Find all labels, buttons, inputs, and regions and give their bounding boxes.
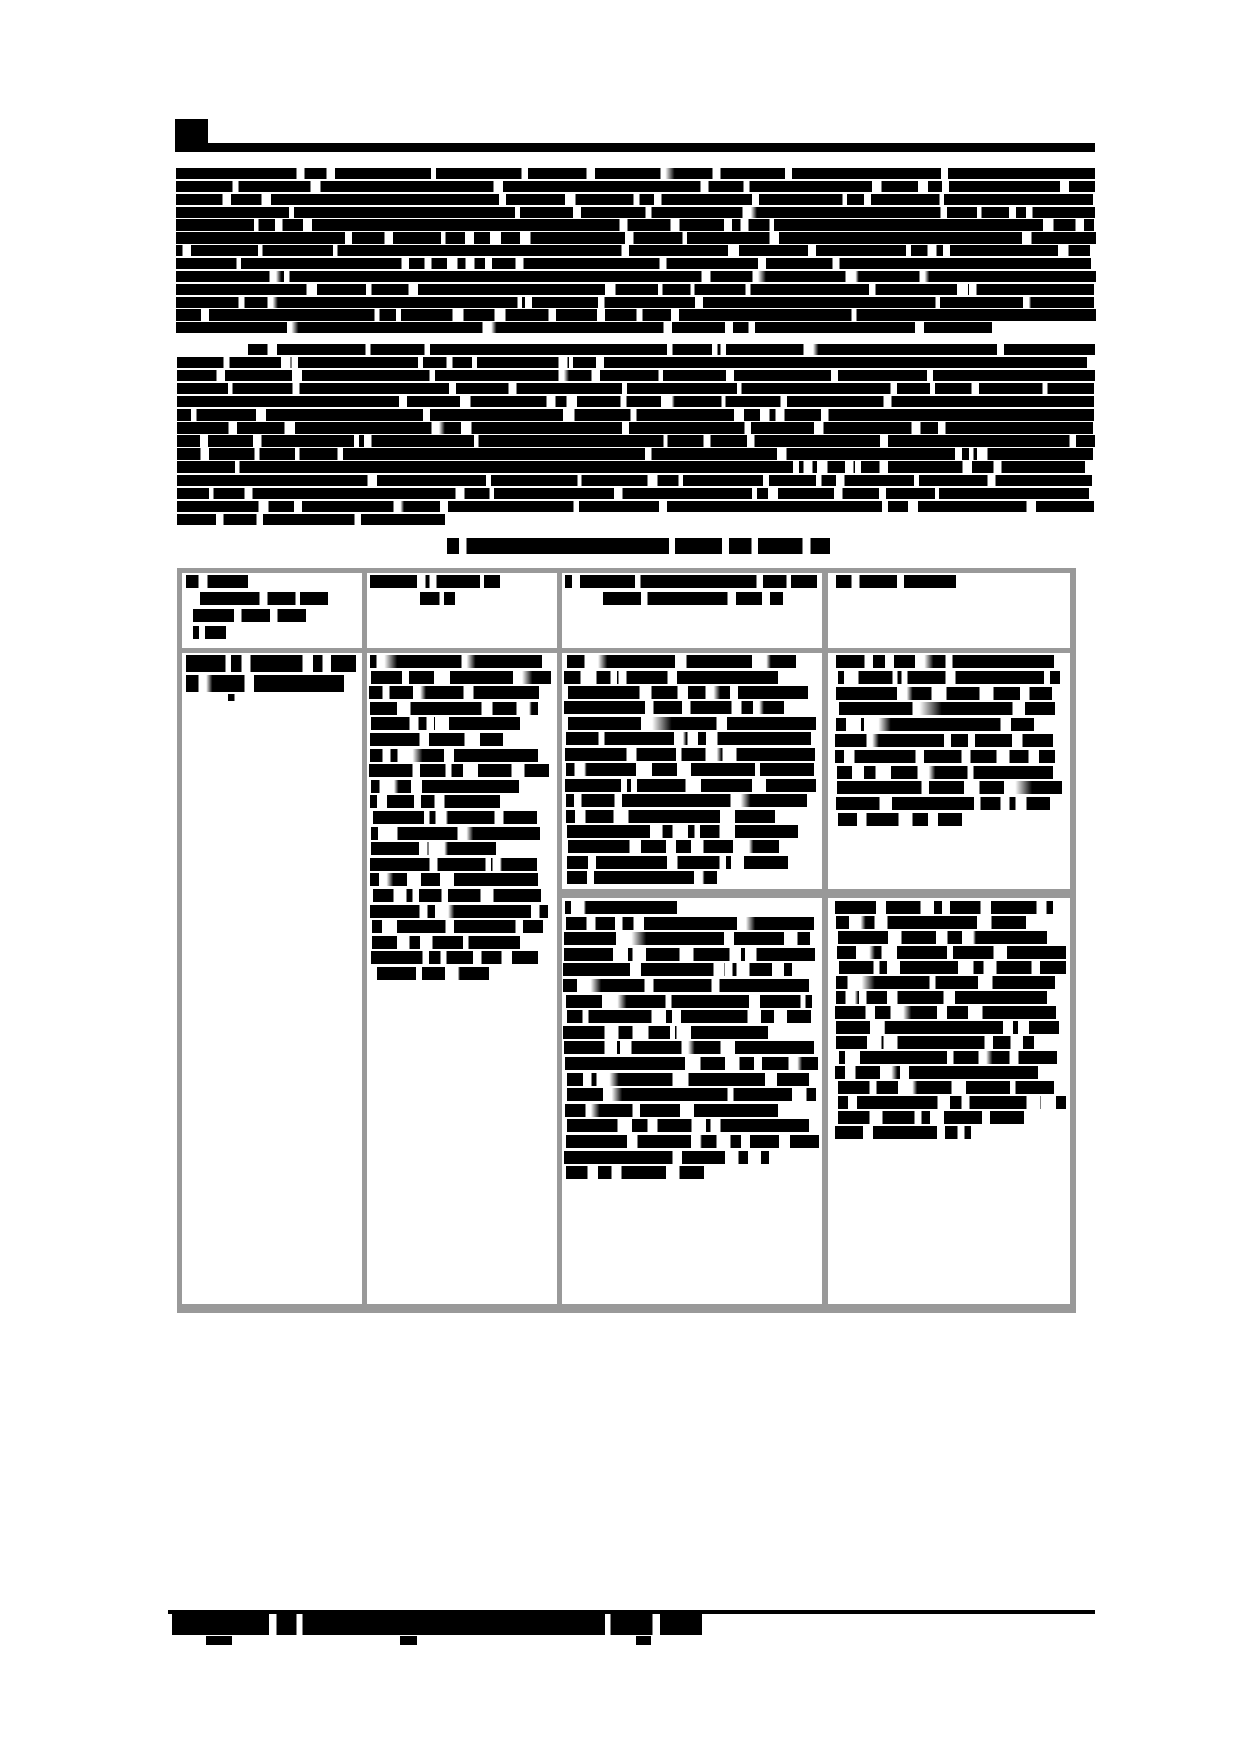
table-border-top	[177, 568, 1076, 573]
scanned-document-page	[0, 0, 1241, 1754]
table-divider-row	[557, 889, 1076, 898]
table-divider-header	[177, 648, 1076, 653]
table-divider-col-1	[362, 568, 367, 1313]
table-border-bottom	[177, 1304, 1076, 1313]
table-divider-col-2	[557, 568, 562, 1313]
table-divider-col-3	[822, 568, 828, 1313]
table-border-right	[1070, 568, 1076, 1313]
table-border-left	[177, 568, 182, 1313]
